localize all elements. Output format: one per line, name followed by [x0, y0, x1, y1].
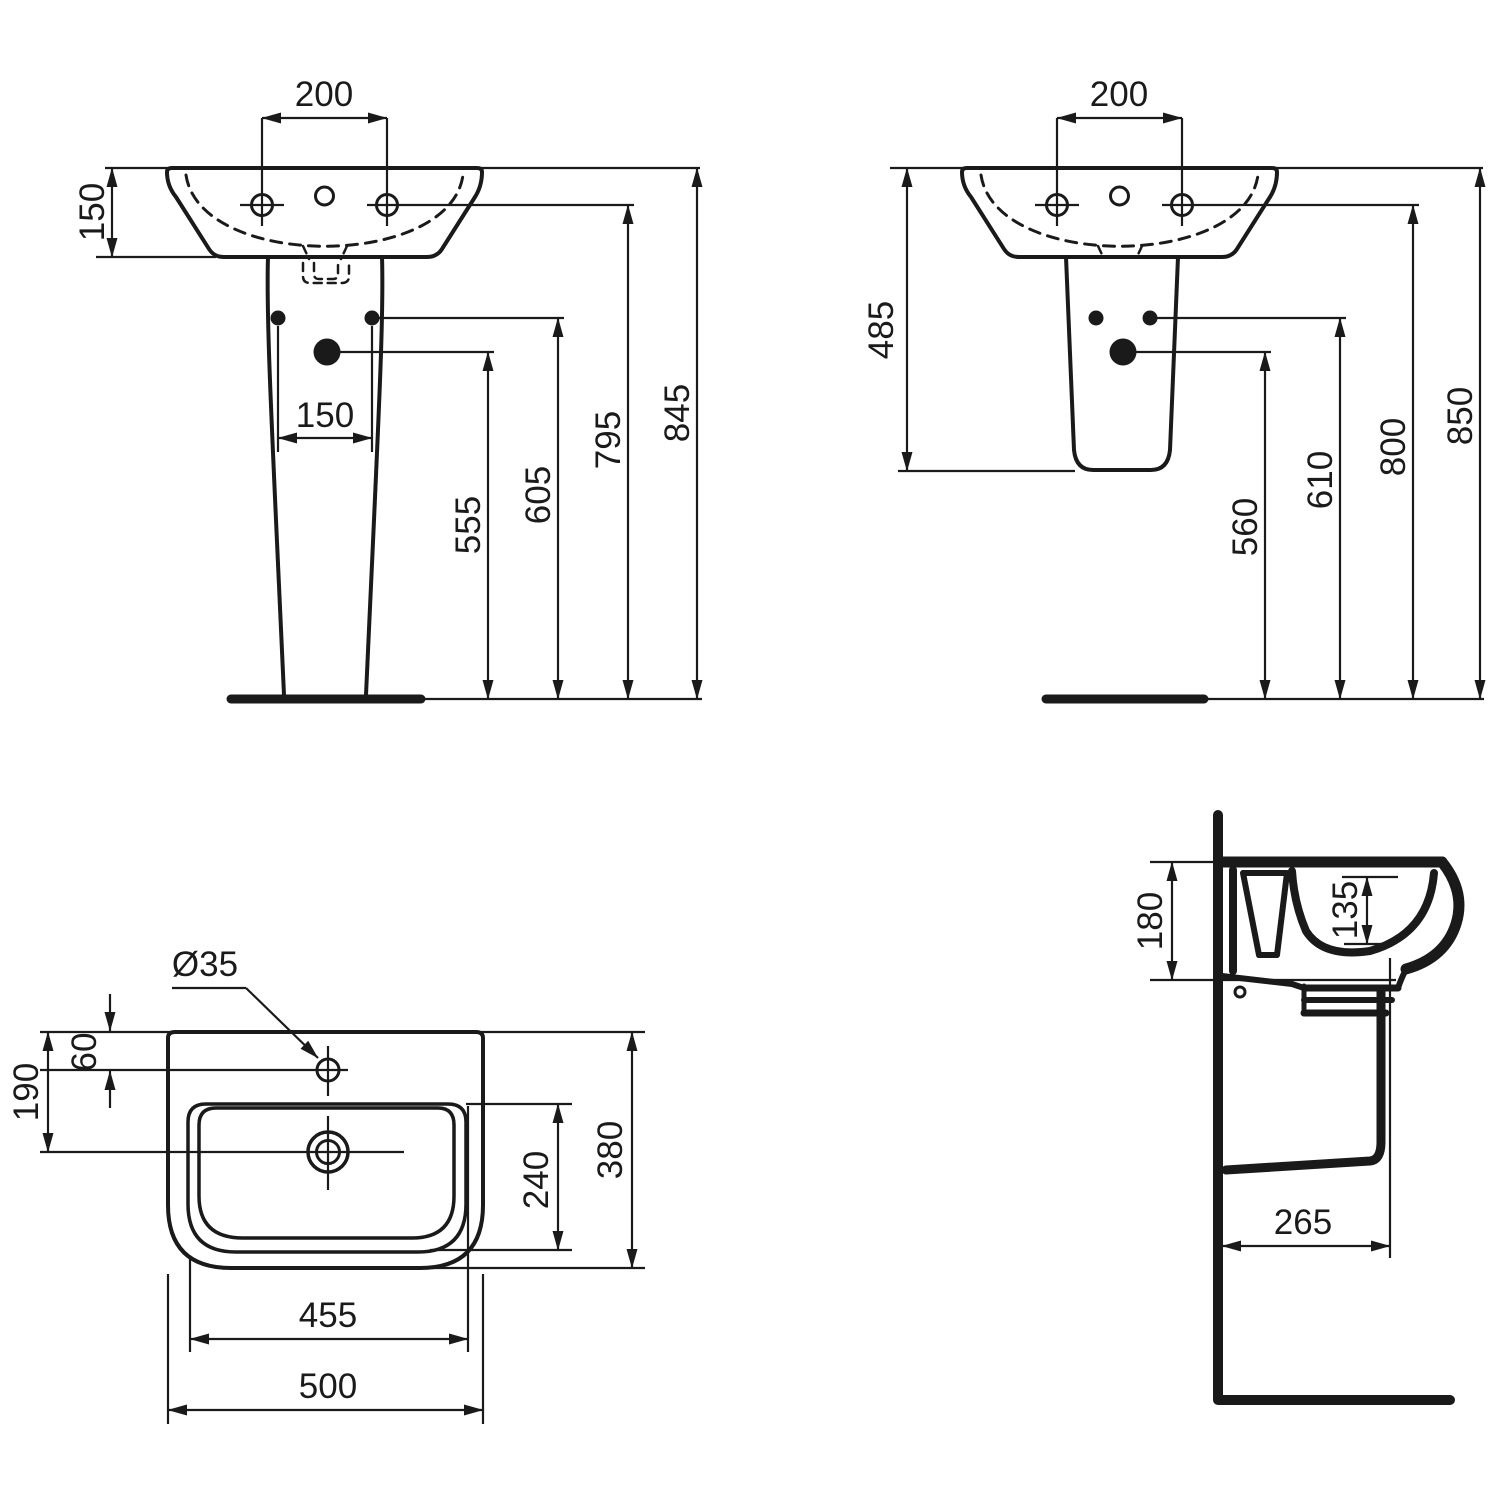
side-section-view: 180 135 265 [1131, 815, 1459, 1400]
fixing-hole-left [1089, 311, 1104, 326]
dim-label-795: 795 [589, 411, 628, 469]
drain-flange-connector [1398, 968, 1407, 988]
front-view-full-pedestal: 200 150 150 555 605 795 845 [73, 75, 702, 699]
dim-label-500: 500 [299, 1367, 357, 1406]
washbasin-dimension-drawing: 200 150 150 555 605 795 845 200 485 [0, 0, 1500, 1500]
dim-label-605: 605 [519, 466, 558, 524]
dim-label-455: 455 [299, 1296, 357, 1335]
dim-label-800: 800 [1374, 418, 1413, 476]
basin-front [167, 168, 482, 283]
dim-label-845: 845 [658, 384, 697, 442]
dim-label-tap-centres: 200 [295, 75, 353, 114]
dim-label-380: 380 [591, 1121, 630, 1179]
dim-label-190: 190 [7, 1063, 46, 1121]
technical-drawing-sheet: 200 150 150 555 605 795 845 200 485 [0, 0, 1500, 1500]
dim-label-240: 240 [517, 1151, 556, 1209]
dim-label-180: 180 [1131, 892, 1170, 950]
front-view-semi-pedestal: 200 485 560 610 800 850 [862, 75, 1484, 699]
dim-label-555: 555 [449, 496, 488, 554]
wall-fixing-hole [1235, 987, 1245, 997]
semi-pedestal-side-profile [1226, 990, 1381, 1170]
dim-label-135: 135 [1326, 881, 1365, 939]
dim-label-tap-centres: 200 [1090, 75, 1148, 114]
dim-label-610: 610 [1301, 451, 1340, 509]
basin-underside [1222, 976, 1304, 988]
plan-view: 60 190 Ø35 240 380 455 500 [7, 945, 645, 1424]
dim-label-60: 60 [65, 1033, 104, 1072]
dim-label-265: 265 [1274, 1203, 1332, 1242]
deck-section-cut [1243, 873, 1287, 955]
pedestal-fixing-hole-left [271, 311, 286, 326]
dim-label-485: 485 [862, 301, 901, 359]
dim-label-560: 560 [1226, 498, 1265, 556]
dim-label-basin-height: 150 [73, 183, 112, 241]
dim-label-tap-diameter: Ø35 [172, 945, 238, 984]
dim-label-pedestal-fixings: 150 [296, 396, 354, 435]
dim-label-850: 850 [1441, 387, 1480, 445]
